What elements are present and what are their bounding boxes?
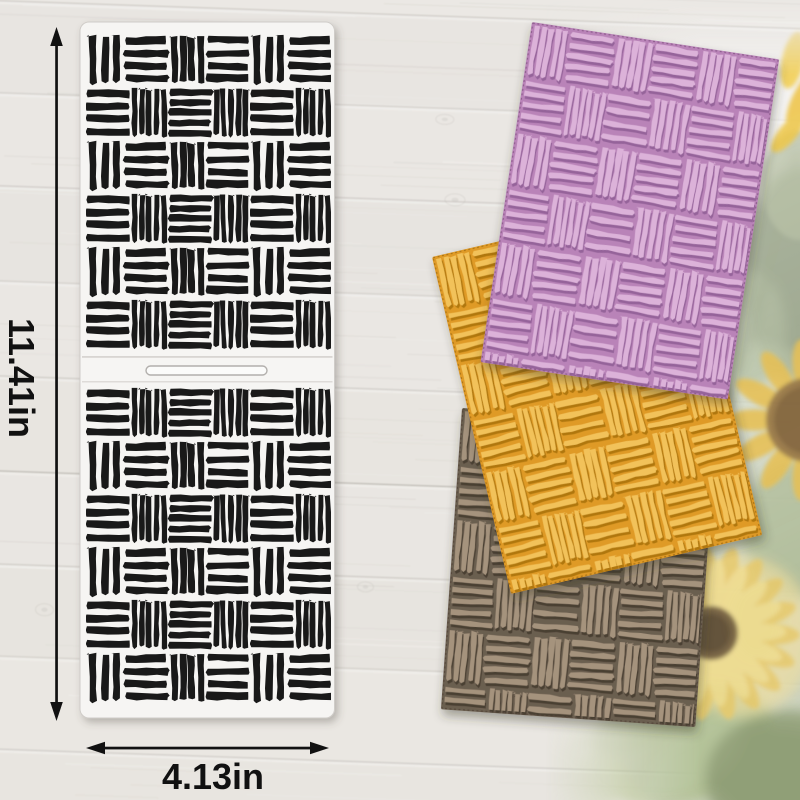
svg-text:4.13in: 4.13in (162, 756, 264, 797)
svg-text:11.41in: 11.41in (1, 318, 42, 438)
